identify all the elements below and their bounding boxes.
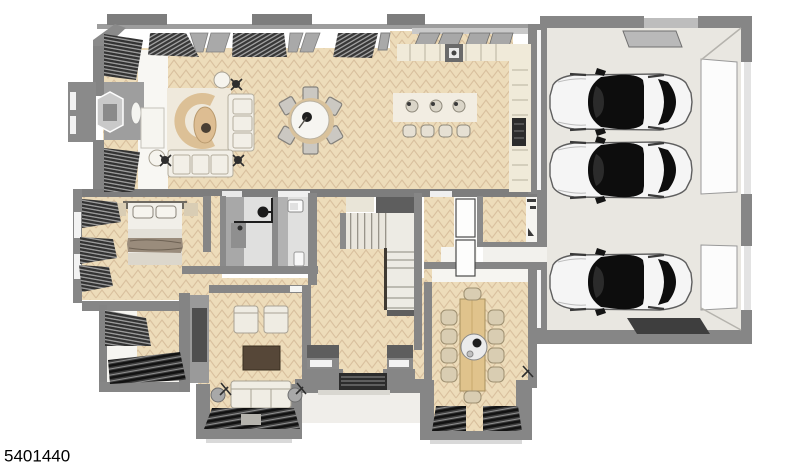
svg-text:5401440: 5401440 [4,447,70,466]
